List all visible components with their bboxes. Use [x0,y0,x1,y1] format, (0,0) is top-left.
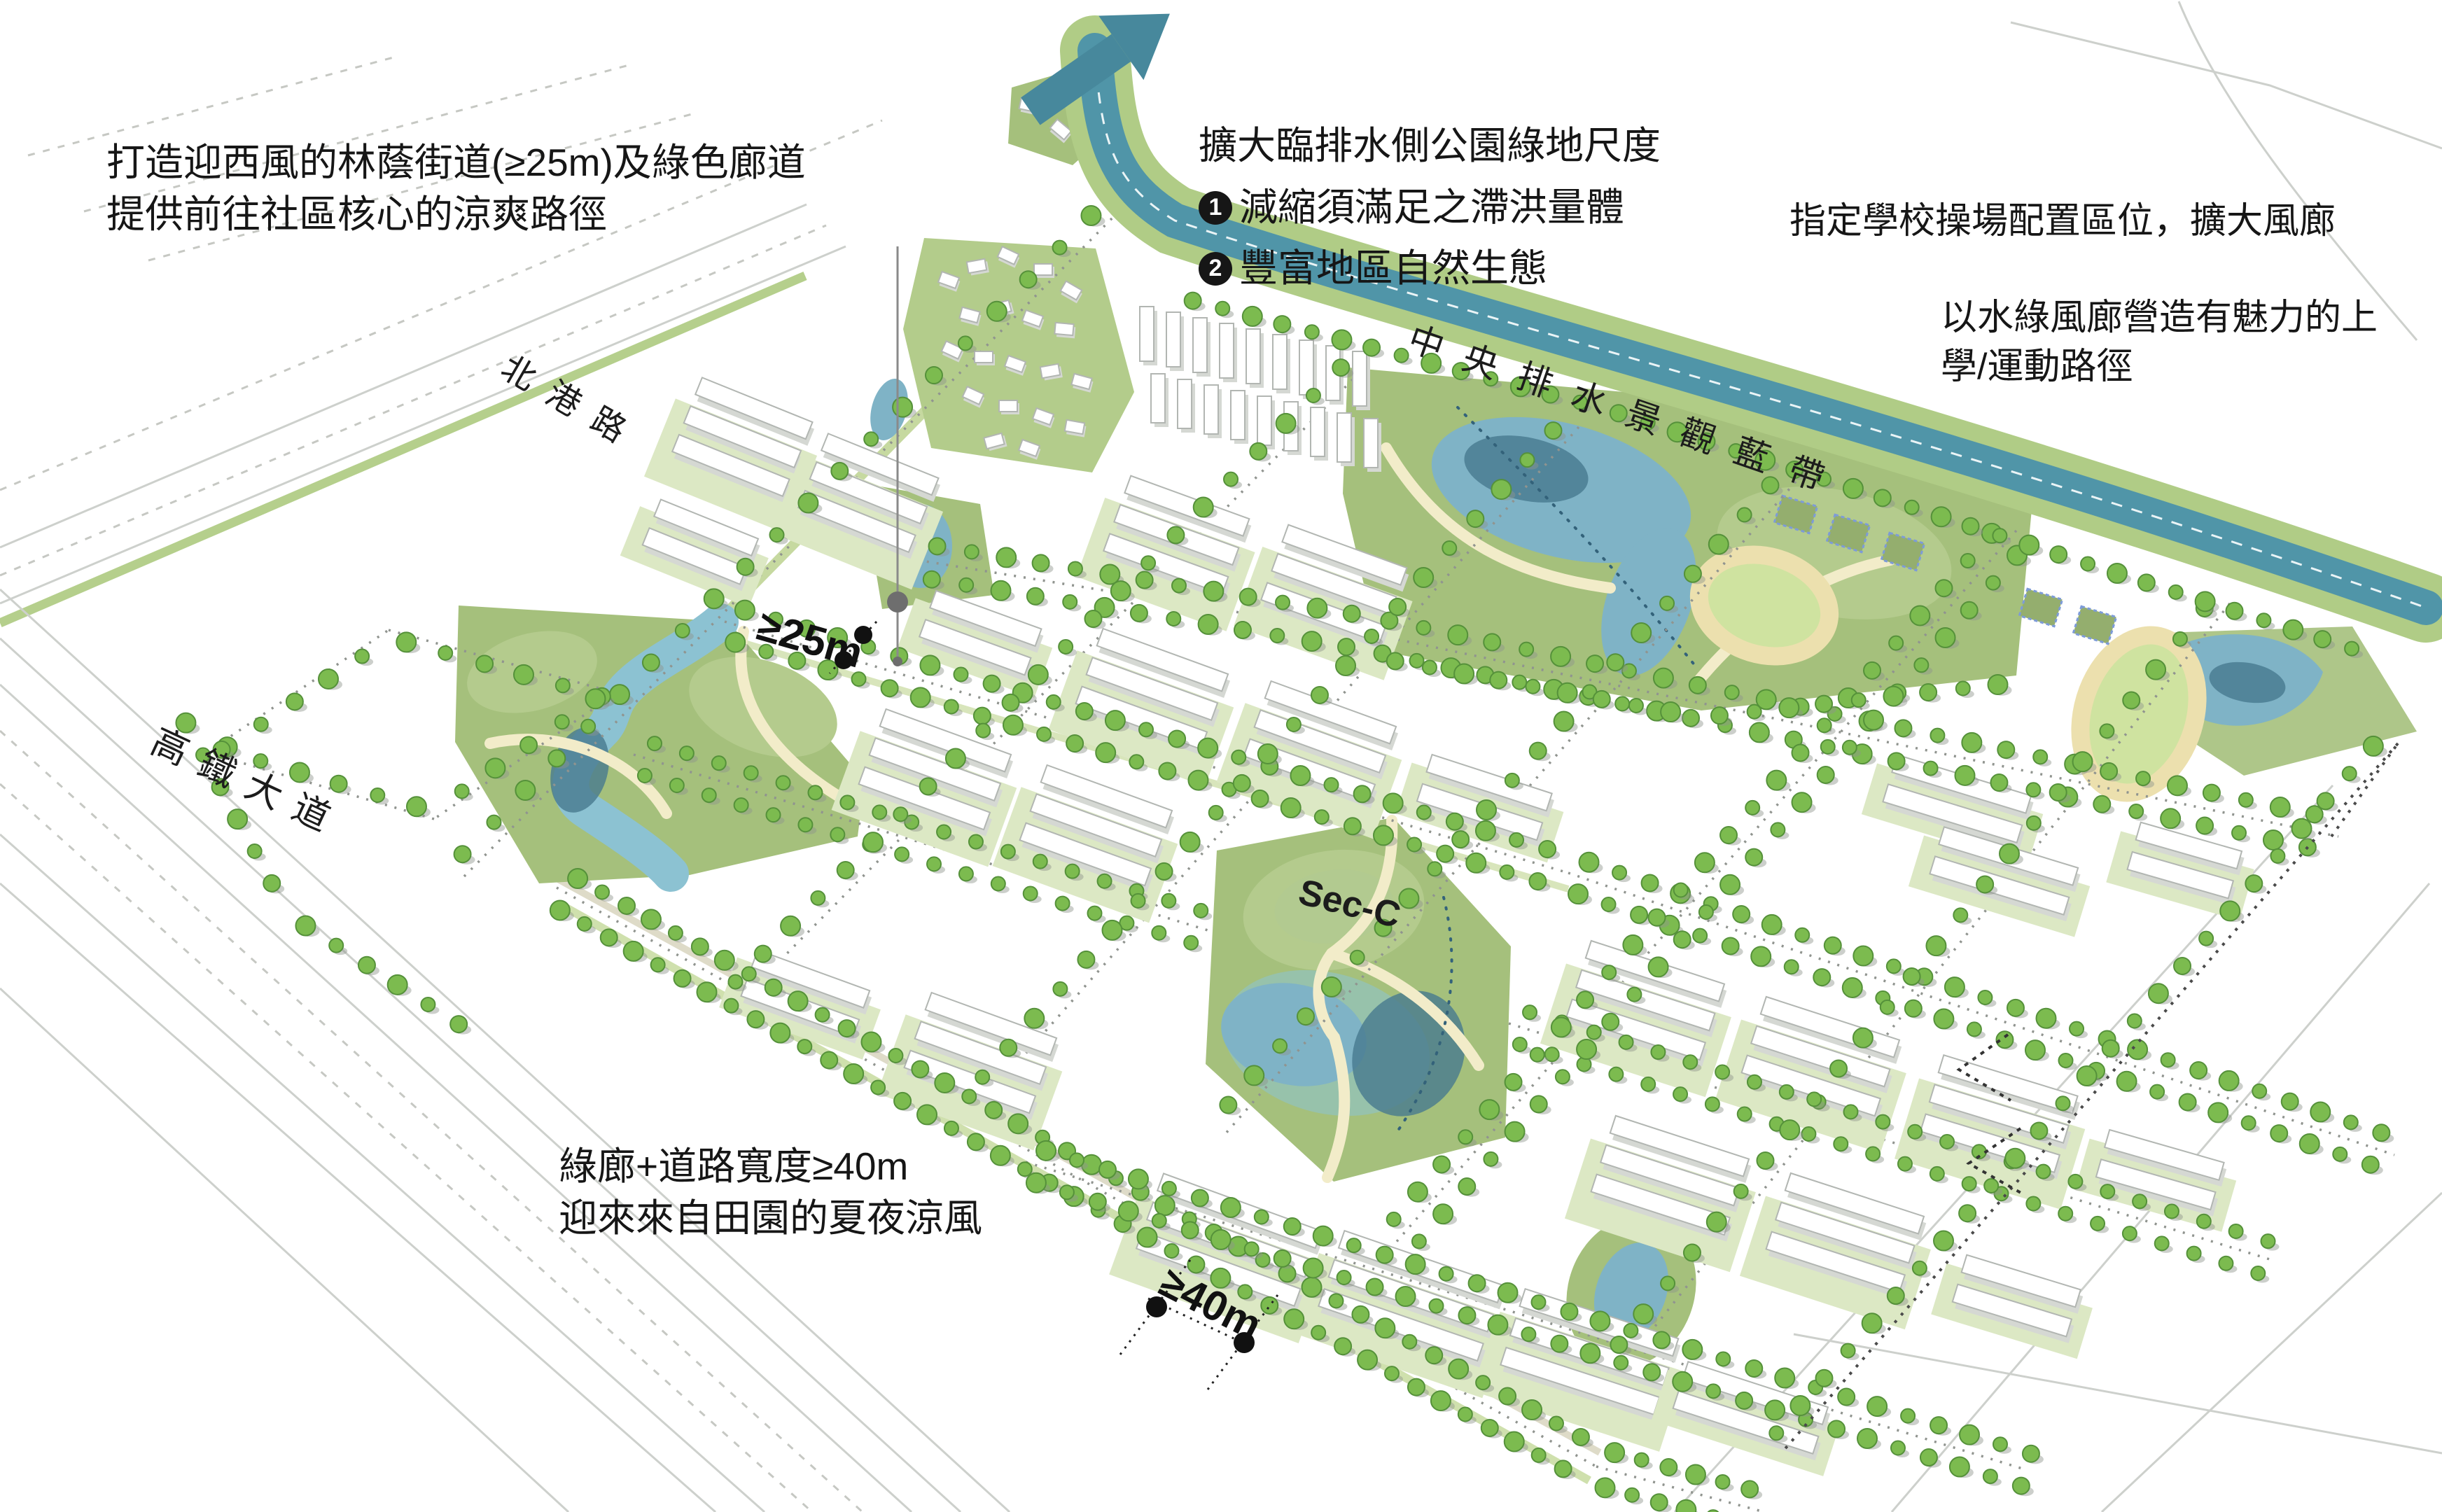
annotation-line: 指定學校操場配置區位，擴大風廊 [1789,197,2336,246]
annotation-east: 以水綠風廊營造有魅力的上 學/運動路徑 [1941,294,2378,391]
annotation-southwest: 綠廊+道路寬度≥40m 迎來來自田園的夏夜涼風 [559,1141,982,1244]
masterplan-canvas: 北港路 高鐵大道 中央排水景觀藍帶 ≥25m ≥40m Sec-C 打造迎西風的… [0,0,2442,1512]
numbered-bullet-icon: 2 [1199,252,1232,286]
annotation-northwest: 打造迎西風的林蔭街道(≥25m)及綠色廊道 提供前往社區核心的涼爽路徑 [106,137,806,240]
numbered-bullet-icon: 1 [1199,191,1232,225]
annotation-bullet-row: 1 減縮須滿足之滯洪量體 [1199,182,1661,234]
annotation-line: 提供前往社區核心的涼爽路徑 [106,189,806,241]
annotation-line: 綠廊+道路寬度≥40m [559,1141,982,1193]
annotation-title: 擴大臨排水側公園綠地尺度 [1199,120,1661,172]
existing-village [903,238,1134,472]
annotation-line: 豐富地區自然生態 [1239,243,1547,295]
annotation-line: 迎來來自田園的夏夜涼風 [559,1193,982,1245]
annotation-line: 學/運動路徑 [1941,343,2378,392]
annotation-line: 以水綠風廊營造有魅力的上 [1941,294,2378,343]
annotation-line: 減縮須滿足之滯洪量體 [1239,182,1624,234]
annotation-bullet-row: 2 豐富地區自然生態 [1199,243,1661,295]
annotation-northeast: 指定學校操場配置區位，擴大風廊 [1789,197,2336,246]
central-park-sec-c [1206,818,1511,1182]
annotation-line: 打造迎西風的林蔭街道(≥25m)及綠色廊道 [106,137,806,189]
annotation-north: 擴大臨排水側公園綠地尺度 1 減縮須滿足之滯洪量體 2 豐富地區自然生態 [1199,120,1661,295]
